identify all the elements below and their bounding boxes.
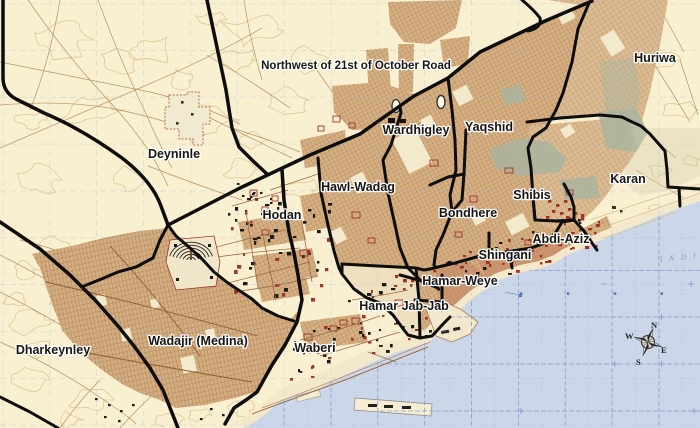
svg-text:Shingani: Shingani [479, 248, 532, 262]
svg-text:N: N [651, 320, 658, 330]
svg-text:Shibis: Shibis [513, 188, 551, 202]
svg-text:Wardhigley: Wardhigley [383, 123, 450, 137]
svg-text:Bondhere: Bondhere [439, 206, 497, 220]
svg-text:Wadajir (Medina): Wadajir (Medina) [148, 334, 248, 348]
svg-text:Dharkeynley: Dharkeynley [16, 343, 90, 357]
svg-text:E: E [661, 345, 667, 355]
svg-text:Hamar-Weye: Hamar-Weye [422, 274, 498, 288]
svg-text:Hodan: Hodan [263, 208, 302, 222]
svg-text:S: S [636, 357, 641, 367]
svg-text:Abdi-Aziz: Abdi-Aziz [533, 232, 590, 246]
svg-text:Northwest of 21st of October R: Northwest of 21st of October Road [261, 60, 451, 72]
svg-text:Deyninle: Deyninle [148, 147, 200, 161]
svg-text:Karan: Karan [610, 172, 645, 186]
svg-text:Waberi: Waberi [294, 341, 335, 355]
svg-text:Hawl-Wadag: Hawl-Wadag [321, 180, 395, 194]
svg-text:W: W [625, 331, 634, 341]
svg-text:Huriwa: Huriwa [634, 51, 677, 65]
svg-text:Hamar Jab-Jab: Hamar Jab-Jab [359, 299, 449, 313]
svg-text:Yaqshid: Yaqshid [465, 120, 513, 134]
